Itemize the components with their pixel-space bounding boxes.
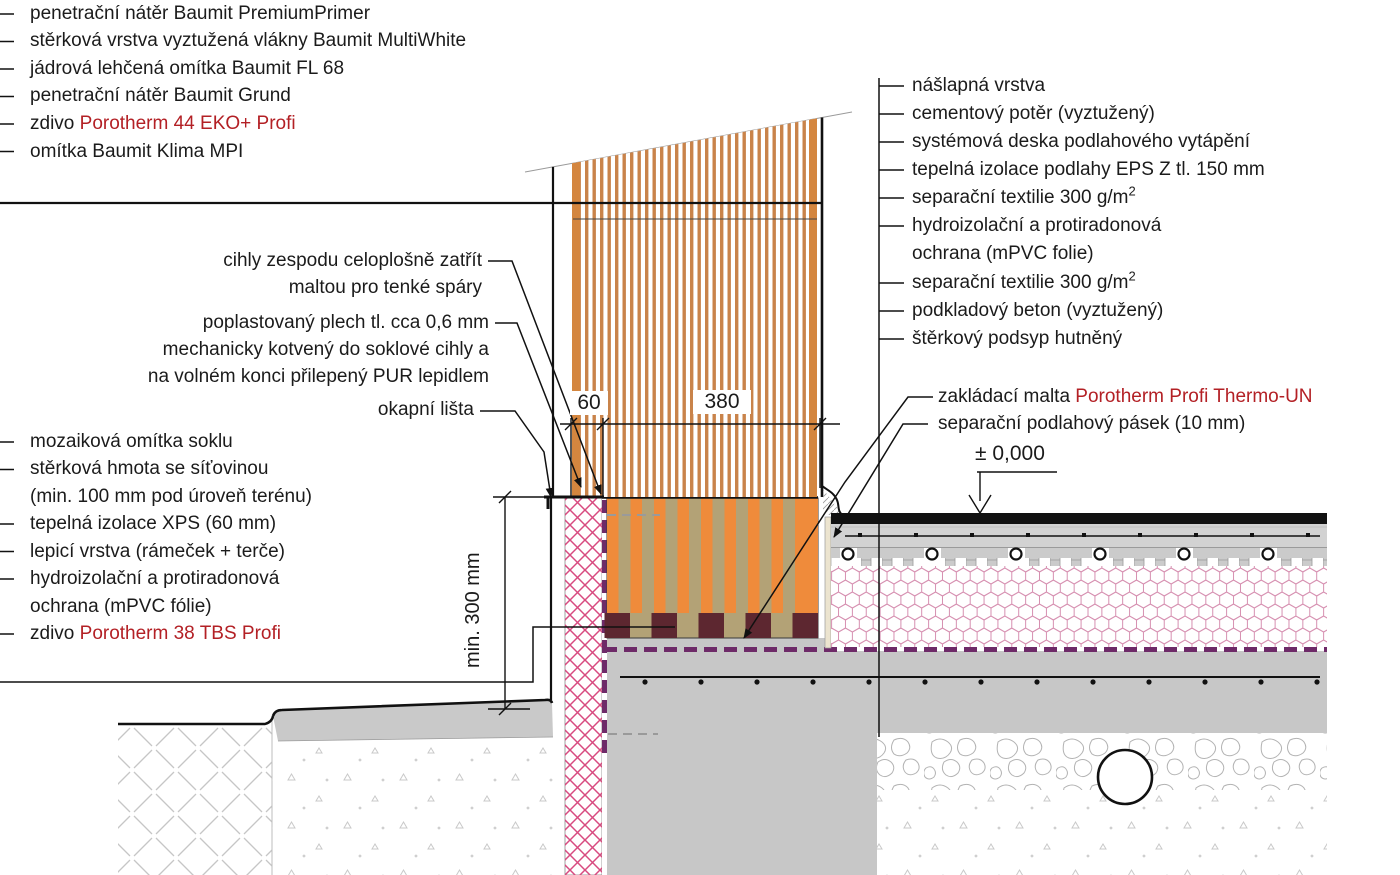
label-wall-layer-6: omítka Baumit Klima MPI [30,141,243,163]
label-floor-layer-8: podkladový beton (vyztužený) [912,300,1163,322]
label-floor-layer-2: cementový potěr (vyztužený) [912,103,1155,125]
label-floor-layer-7: separační textilie 300 g/m2 [912,272,1136,294]
label-plinth-layer-2: stěrková hmota se síťovinou [30,458,268,480]
floor-assembly [831,513,1327,647]
label-floor-layer-1: nášlapná vrstva [912,75,1045,97]
construction-detail-page: penetrační nátěr Baumit PremiumPrimer st… [0,0,1400,875]
xps-insulation [565,498,602,875]
label-bedding-mortar: zakládací malta Porotherm Profi Thermo-U… [938,386,1313,408]
label-wall-layer-3: jádrová lehčená omítka Baumit FL 68 [30,58,344,80]
level-label: ± 0,000 [975,443,1045,465]
label-brick-bedding-2: maltou pro tenké spáry [289,277,482,299]
exterior-walkway [273,700,553,741]
label-flashing-1: poplastovaný plech tl. cca 0,6 mm [203,312,489,334]
label-floor-layer-5: separační textilie 300 g/m2 [912,187,1136,209]
label-wall-layer-5: zdivo Porotherm 44 EKO+ Profi [30,113,296,135]
terrain-line [118,716,273,724]
label-drip-edge: okapní lišta [378,399,474,421]
label-floor-layer-9: štěrkový podsyp hutněný [912,328,1122,350]
label-floor-layer-6b: ochrana (mPVC folie) [912,243,1094,265]
label-separation-strip: separační podlahový pásek (10 mm) [938,413,1245,435]
plinth-brick [602,498,818,639]
label-floor-layer-6: hydroizolační a protiradonová [912,215,1161,237]
label-plinth-layer-1: mozaiková omítka soklu [30,431,233,453]
label-plinth-layer-5: hydroizolační a protiradonová [30,568,279,590]
label-flashing-2: mechanicky kotvený do soklové cihly a [163,339,489,361]
label-wall-layer-1: penetrační nátěr Baumit PremiumPrimer [30,3,370,25]
label-floor-layer-3: systémová deska podlahového vytápění [912,131,1250,153]
label-plinth-layer-5b: ochrana (mPVC fólie) [30,596,212,618]
label-floor-layer-4: tepelná izolace podlahy EPS Z tl. 150 mm [912,159,1265,181]
edge-separation-strip [825,517,831,648]
level-mark [969,472,1057,513]
drain-pipe [1098,750,1152,804]
dim-380: 380 [693,390,751,414]
label-plinth-layer-6: zdivo Porotherm 38 TBS Profi [30,623,281,645]
label-flashing-3: na volném konci přilepený PUR lepidlem [148,366,489,388]
dim-min-300: min. 300 mm [462,552,485,668]
label-wall-layer-4: penetrační nátěr Baumit Grund [30,85,291,107]
label-wall-layer-2: stěrková vrstva vyztužená vlákny Baumit … [30,30,466,52]
label-plinth-layer-2b: (min. 100 mm pod úroveň terénu) [30,486,312,508]
label-brick-bedding-1: cihly zespodu celoplošně zatřít [223,250,482,272]
gravel-bed [877,733,1327,875]
soil-herringbone-hatch [118,718,272,875]
label-plinth-layer-3: tepelná izolace XPS (60 mm) [30,513,276,535]
label-plinth-layer-4: lepicí vrstva (rámeček + terče) [30,541,285,563]
dim-60: 60 [570,391,608,415]
